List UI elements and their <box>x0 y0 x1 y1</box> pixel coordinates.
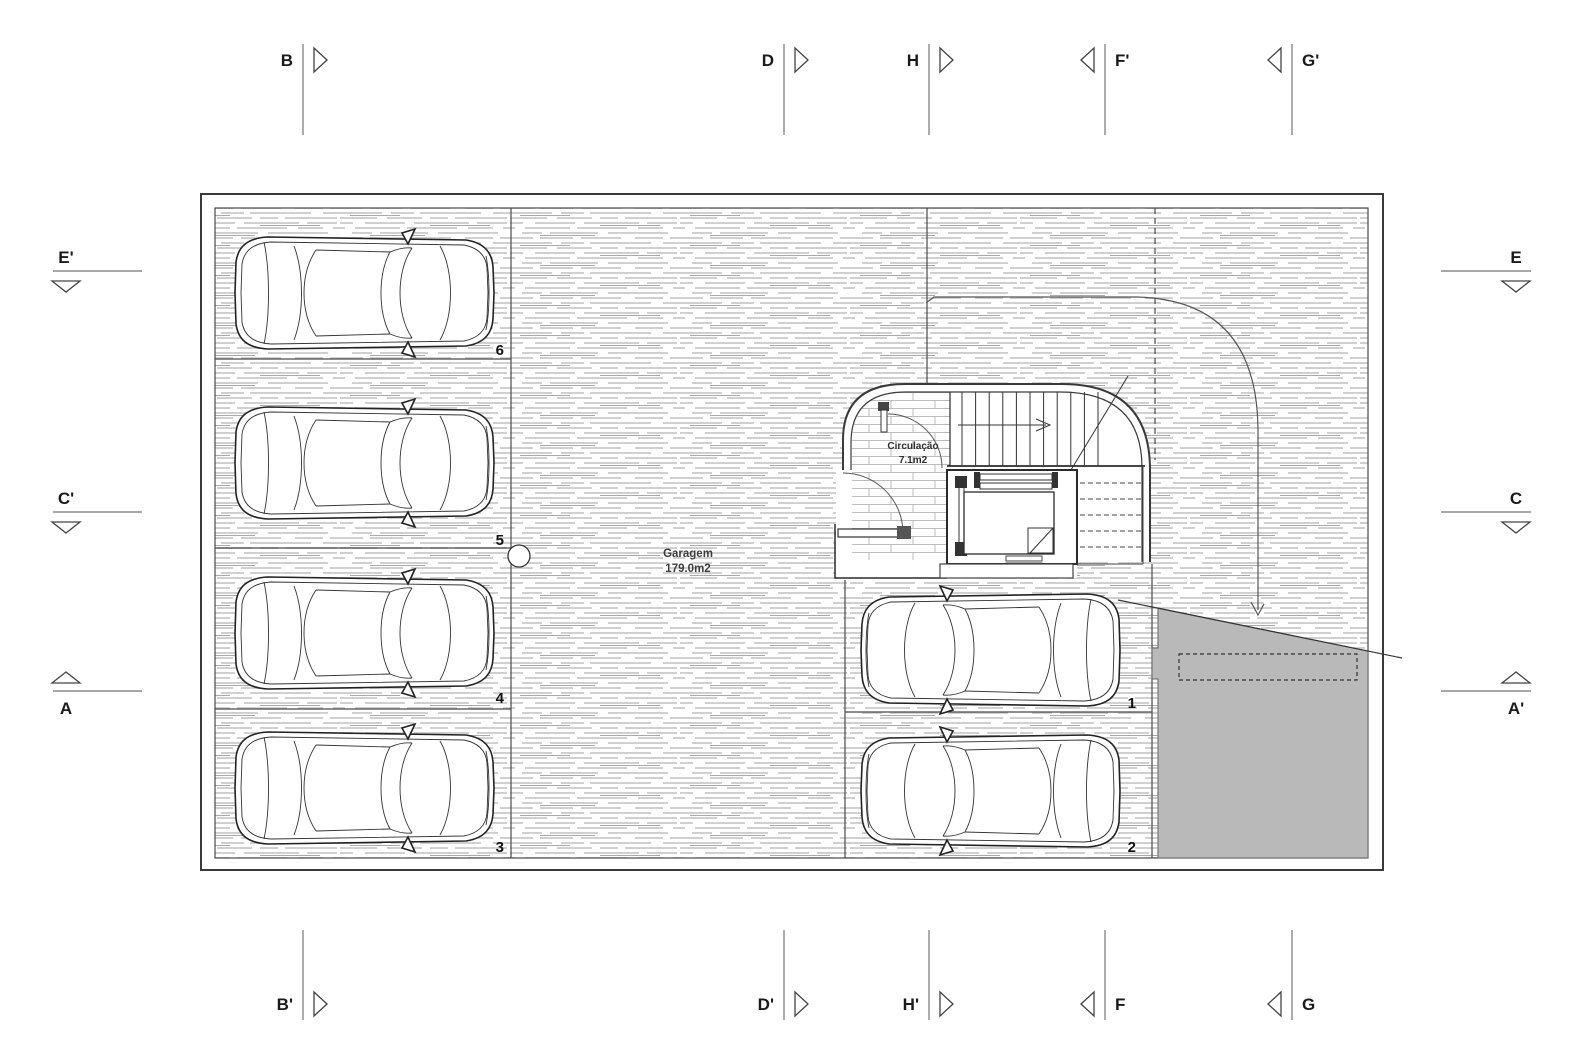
section-marker-a: A <box>52 672 142 718</box>
section-arrow-icon <box>795 992 808 1016</box>
core-bottom-step <box>940 564 1073 578</box>
sill <box>1006 556 1042 561</box>
section-label: H' <box>903 995 919 1014</box>
elevator-door <box>980 483 1052 489</box>
section-marker-f: F <box>1081 930 1125 1020</box>
ramp-fill <box>1152 608 1368 858</box>
car-icon <box>861 727 1120 855</box>
section-marker-c: C <box>1441 489 1531 533</box>
section-label: B' <box>277 995 293 1014</box>
section-marker-b: B <box>281 44 327 135</box>
section-arrow-icon <box>1502 522 1530 533</box>
section-arrow-icon <box>1081 48 1094 72</box>
elevator <box>947 470 1077 567</box>
section-marker-b-prime: B' <box>277 930 327 1020</box>
section-marker-a-prime: A' <box>1441 672 1531 718</box>
stall-number: 2 <box>1128 839 1136 856</box>
floor-plan-page: Circulação 7.1m2 6 5 4 3 1 2 Garagem 179… <box>0 0 1572 1058</box>
section-marker-d: D <box>762 44 808 135</box>
garage-area-label: 179.0m2 <box>665 563 710 575</box>
floor-plan-svg: Circulação 7.1m2 6 5 4 3 1 2 Garagem 179… <box>0 0 1572 1058</box>
section-marker-h: H <box>907 44 953 135</box>
section-marker-g: G <box>1268 930 1315 1020</box>
section-label: D' <box>758 995 774 1014</box>
section-arrow-icon <box>52 281 80 292</box>
section-marker-f-prime: F' <box>1081 44 1129 135</box>
section-markers-top: B D H F' G' <box>281 44 1320 135</box>
section-label: E <box>1510 248 1521 267</box>
section-label: F' <box>1115 51 1129 70</box>
section-markers-right: E C A' <box>1441 248 1531 718</box>
stall-number: 3 <box>496 839 504 856</box>
section-label: A' <box>1508 699 1524 718</box>
section-label: B <box>281 51 293 70</box>
section-label: C' <box>58 489 74 508</box>
section-arrow-icon <box>940 992 953 1016</box>
car-icon <box>235 569 494 697</box>
car-icon <box>861 586 1120 714</box>
circulation-name-label: Circulação <box>887 441 938 452</box>
section-arrow-icon <box>1502 281 1530 292</box>
section-marker-d-prime: D' <box>758 930 808 1020</box>
door-jamb <box>974 472 980 488</box>
section-label: D <box>762 51 774 70</box>
stall-number: 4 <box>496 690 505 707</box>
section-marker-h-prime: H' <box>903 930 953 1020</box>
plan: Circulação 7.1m2 6 5 4 3 1 2 Garagem 179… <box>201 194 1402 870</box>
stair-core: Circulação 7.1m2 <box>835 376 1150 580</box>
garage-name-label: Garagem <box>663 548 713 560</box>
rail-block <box>955 476 967 488</box>
stall-number: 6 <box>496 342 504 359</box>
section-arrow-icon <box>1502 672 1530 683</box>
section-arrow-icon <box>1081 992 1094 1016</box>
door-leaf <box>881 410 887 432</box>
door-jamb <box>1052 472 1058 488</box>
stall-number: 5 <box>496 532 504 549</box>
section-label: G' <box>1302 51 1319 70</box>
door-stop <box>897 526 911 539</box>
section-arrow-icon <box>1268 992 1281 1016</box>
section-marker-g-prime: G' <box>1268 44 1319 135</box>
car-icon <box>235 399 494 527</box>
section-arrow-icon <box>940 48 953 72</box>
section-label: H <box>907 51 919 70</box>
elevator-door <box>980 474 1052 480</box>
section-arrow-icon <box>314 48 327 72</box>
section-arrow-icon <box>1268 48 1281 72</box>
column <box>508 545 530 567</box>
car-icon <box>235 229 494 357</box>
section-label: G <box>1302 995 1315 1014</box>
section-label: A <box>60 699 72 718</box>
section-markers-bottom: B' D' H' F G <box>277 930 1316 1020</box>
section-arrow-icon <box>52 672 80 683</box>
section-arrow-icon <box>795 48 808 72</box>
section-marker-e-prime: E' <box>52 248 142 292</box>
stall-number: 1 <box>1128 695 1136 712</box>
section-arrow-icon <box>52 522 80 533</box>
door-leaf <box>838 529 903 537</box>
section-label: C <box>1510 489 1522 508</box>
section-marker-c-prime: C' <box>52 489 142 533</box>
section-marker-e: E <box>1441 248 1531 292</box>
car-icon <box>235 724 494 852</box>
section-arrow-icon <box>314 992 327 1016</box>
circulation-area-label: 7.1m2 <box>899 455 928 466</box>
section-label: E' <box>58 248 73 267</box>
section-markers-left: E' C' A <box>52 248 142 718</box>
section-label: F <box>1115 995 1125 1014</box>
